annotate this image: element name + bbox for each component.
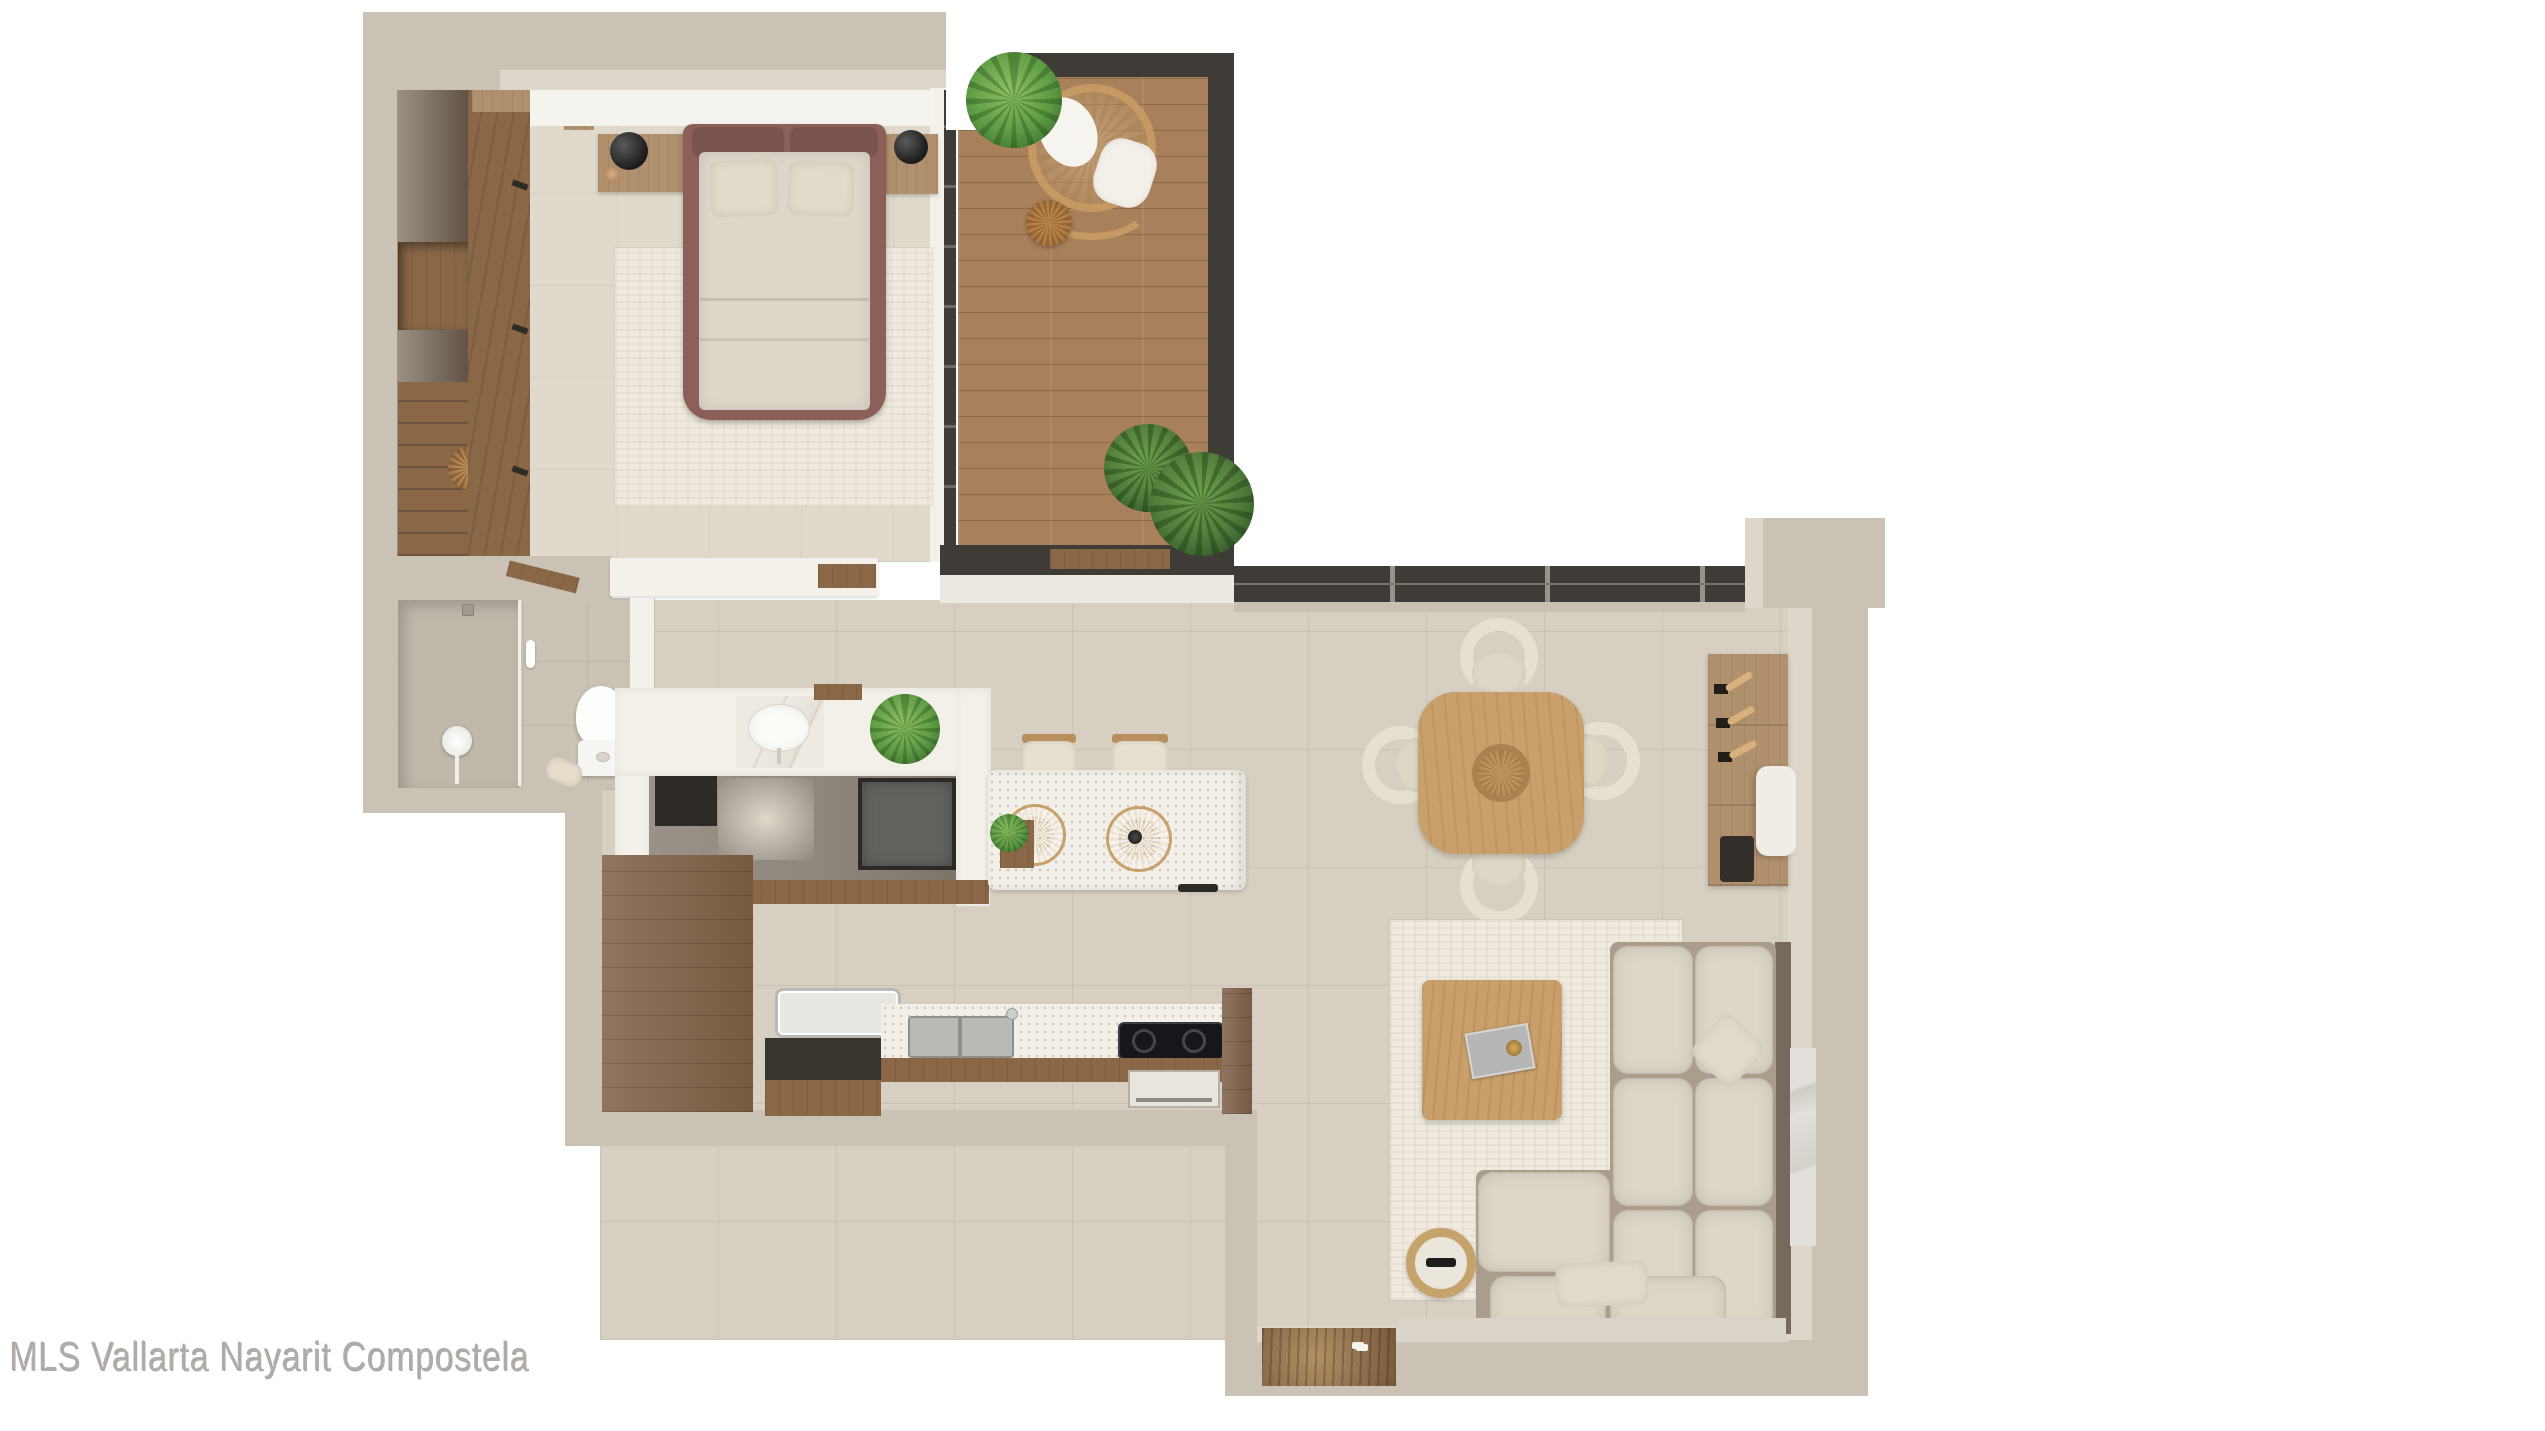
kitchen-counter-left-run	[602, 855, 753, 1112]
window-glass-line	[1234, 583, 1745, 585]
bedside-lamp-left	[610, 132, 648, 170]
console-dark-item	[1720, 836, 1754, 882]
kitchen-bottom-wall	[565, 1110, 1257, 1146]
kitchen-sink-divider	[958, 1018, 962, 1056]
balcony-threshold	[1050, 549, 1170, 569]
living-window-sill	[1234, 602, 1745, 612]
oven-handle	[1136, 1098, 1212, 1102]
headboard-wall-ledge	[530, 90, 934, 126]
floor-plan-render: MLS Vallarta Nayarit Compostela	[0, 0, 2545, 1431]
island-plant	[990, 814, 1028, 852]
bedroom-sliding-door	[818, 564, 876, 588]
island-handle	[1178, 884, 1218, 892]
entry-door-panel	[1262, 1328, 1396, 1386]
duvet-fold	[700, 298, 869, 301]
sofa-cushion	[1695, 1078, 1773, 1206]
kitchen-left-wall	[565, 783, 602, 1145]
sofa-back-cushion	[1478, 1172, 1610, 1272]
counter-side-panel	[1222, 988, 1252, 1114]
open-cabinet	[765, 1038, 881, 1080]
balcony-sill	[940, 575, 1234, 603]
vanity-plant	[870, 694, 940, 764]
vanity-faucet	[777, 748, 781, 764]
entry-threshold	[1398, 1318, 1786, 1340]
duvet-fold	[700, 338, 869, 341]
dining-centerpiece-bowl	[1472, 744, 1530, 802]
entry-door-key	[1352, 1342, 1364, 1349]
bedside-lamp-right	[894, 130, 928, 164]
sofa-wall-shadow	[1775, 942, 1791, 1334]
kitchen-faucet	[1006, 1008, 1018, 1020]
cooktop-burner	[1132, 1029, 1156, 1053]
palm-plant	[966, 52, 1062, 148]
desk-chair	[1756, 766, 1796, 856]
bed-pillow	[709, 158, 780, 217]
living-window-band	[1234, 566, 1745, 604]
sofa-cushion	[1613, 1078, 1693, 1206]
washer	[858, 778, 956, 870]
balcony-plant	[1150, 452, 1254, 556]
laundry-floor-light	[718, 778, 814, 860]
kitchen-drawer-front	[765, 1080, 881, 1116]
bathroom-mirror	[442, 726, 472, 756]
top-right-wall-block	[1745, 518, 1885, 608]
right-wall	[1812, 518, 1868, 1396]
watermark-text: MLS Vallarta Nayarit Compostela	[10, 1334, 530, 1381]
sofa-cushion	[1613, 946, 1693, 1074]
shower-door-handle	[526, 640, 535, 668]
wall-art-panel	[1790, 1048, 1816, 1246]
shower-floor	[398, 600, 520, 788]
laundry-dark-cabinet	[655, 776, 717, 826]
sofa-pillow	[1555, 1260, 1649, 1309]
coffee-table-decor	[1506, 1040, 1522, 1056]
left-wall	[363, 12, 397, 813]
top-wall-inner-face	[500, 70, 947, 90]
window-mullion	[1390, 566, 1395, 604]
top-right-wall-block-face	[1745, 518, 1763, 608]
oven	[1128, 1070, 1220, 1108]
bedside-candle	[604, 166, 620, 182]
vanity-sink	[748, 704, 810, 752]
side-table-item	[1426, 1258, 1456, 1267]
window-mullion	[1545, 566, 1550, 604]
shower-glass-panel	[518, 600, 521, 786]
entry-step-wall	[1225, 1110, 1257, 1396]
balcony-side-table	[1026, 200, 1072, 246]
bathroom-mirror-stand	[455, 754, 459, 784]
vanity-wood-tray	[814, 684, 862, 700]
closet-front-panel	[468, 90, 530, 558]
dining-chair-seat	[1472, 650, 1526, 696]
closet-shelf-niche	[398, 242, 468, 330]
cooktop-burner	[1182, 1029, 1206, 1053]
bed-pillow	[787, 161, 855, 217]
toilet-flush-button	[596, 752, 610, 762]
window-mullion	[1700, 566, 1705, 604]
vanity-right-column	[956, 688, 990, 906]
pendant-light-bulb	[1128, 830, 1142, 844]
balcony-door-frame	[944, 90, 956, 548]
shower-drain	[462, 604, 474, 616]
